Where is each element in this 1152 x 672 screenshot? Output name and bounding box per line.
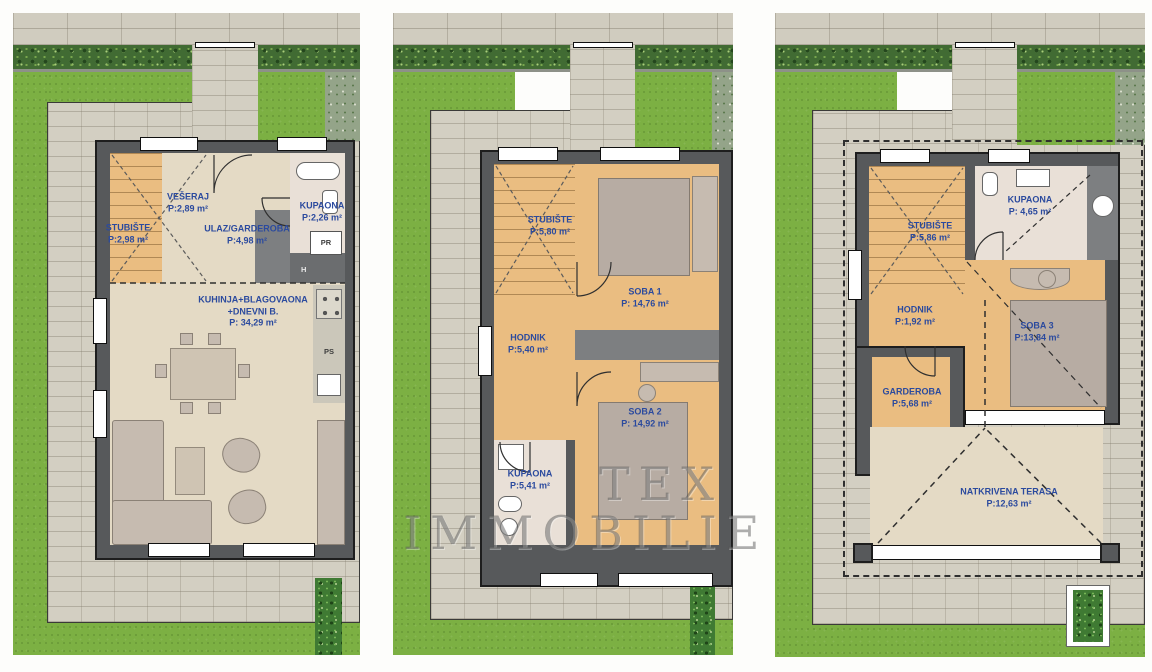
room-name: SOBA 2	[621, 406, 669, 418]
tag-pr: PR	[321, 239, 331, 247]
room-area: P:5,80 m²	[528, 226, 573, 238]
room-hodnik	[494, 295, 575, 440]
room-name: SOBA 3	[1014, 320, 1059, 332]
walkway	[570, 45, 635, 155]
room-label-kupaona-1: KUPAONA P:2,26 m²	[300, 200, 345, 223]
room-name2: +DNEVNI B.	[198, 306, 308, 318]
ivy-bed	[712, 72, 733, 152]
room-name: NATKRIVENA TERASA	[960, 486, 1058, 498]
room-name: STUBIŠTE	[106, 222, 151, 234]
room-label-kupaona-2: KUPAONA P:5,41 m²	[508, 468, 553, 491]
dining-table	[170, 348, 236, 400]
window	[618, 573, 713, 587]
flower-bed	[315, 578, 342, 655]
room-label-stubiste-3: STUBIŠTE P:5,86 m²	[908, 220, 953, 243]
room-label-kuhinja: KUHINJA+BLAGOVAONA +DNEVNI B. P: 34,29 m…	[198, 294, 308, 329]
room-name: HODNIK	[895, 304, 935, 316]
room-area: P:5,41 m²	[508, 480, 553, 492]
room-name: STUBIŠTE	[908, 220, 953, 232]
room-label-hodnik-3: HODNIK P:1,92 m²	[895, 304, 935, 327]
flower-bed	[690, 578, 715, 655]
washer-icon	[500, 518, 518, 536]
window	[478, 326, 492, 376]
room-name: KUPAONA	[1008, 194, 1053, 206]
staircase-ground	[110, 153, 162, 283]
desk-chair	[638, 384, 656, 402]
room-name: KUPAONA	[300, 200, 345, 212]
window	[540, 573, 598, 587]
coffee-table	[175, 447, 205, 495]
window	[600, 147, 680, 161]
bed	[598, 178, 690, 276]
hedge	[635, 45, 733, 72]
grass-front	[812, 72, 897, 110]
room-name: HODNIK	[508, 332, 548, 344]
chair-icon	[180, 333, 193, 345]
hedge	[1017, 45, 1145, 72]
planter-bush	[1073, 590, 1103, 642]
ivy-bed	[325, 72, 360, 141]
chair-icon	[208, 333, 221, 345]
wardrobe	[692, 176, 718, 272]
hedge	[393, 45, 570, 72]
grass-back	[393, 620, 733, 655]
window	[140, 137, 198, 151]
grass-side	[775, 72, 812, 655]
shaft-block	[290, 253, 345, 283]
room-label-garderoba: GARDEROBA P:5,68 m²	[882, 386, 941, 409]
gate-threshold	[195, 42, 255, 48]
room-name: SOBA 1	[621, 286, 669, 298]
sink-icon	[296, 162, 340, 180]
floorplan-sheet: VEŠERAJ P:2,89 m² STUBIŠTE P:2,98 m² ULA…	[0, 0, 1152, 672]
room-label-hodnik-2: HODNIK P:5,40 m²	[508, 332, 548, 355]
walkway	[192, 45, 258, 141]
roof-outline-dashed	[843, 140, 1143, 577]
shower-icon	[498, 444, 524, 470]
walkway	[952, 45, 1017, 140]
room-name: GARDEROBA	[882, 386, 941, 398]
gate-threshold	[573, 42, 633, 48]
window	[243, 543, 315, 557]
room-name: VEŠERAJ	[167, 191, 209, 203]
stove-icon	[316, 289, 342, 319]
hedge	[775, 45, 952, 72]
desk	[640, 362, 719, 382]
hedge	[258, 45, 360, 72]
window	[148, 543, 210, 557]
ivy-bed	[1115, 72, 1145, 145]
room-area: P:5,68 m²	[882, 398, 941, 410]
room-label-stubiste-2: STUBIŠTE P:5,80 m²	[528, 214, 573, 237]
grass-side	[393, 72, 430, 655]
grass-front	[1017, 72, 1115, 145]
grass-front	[258, 72, 325, 141]
closet-band	[575, 330, 719, 360]
room-name: STUBIŠTE	[528, 214, 573, 226]
sink-icon	[498, 496, 522, 512]
chair-icon	[208, 402, 221, 414]
chair-icon	[238, 364, 250, 378]
room-label-stubiste-1: STUBIŠTE P:2,98 m²	[106, 222, 151, 245]
grass-front	[430, 72, 515, 110]
room-label-soba2: SOBA 2 P: 14,92 m²	[621, 406, 669, 429]
chair-icon	[155, 364, 167, 378]
room-name: KUHINJA+BLAGOVAONA	[198, 294, 308, 306]
room-area: P: 14,76 m²	[621, 298, 669, 310]
sidewalk-strip	[775, 13, 1145, 45]
room-area: P: 34,29 m²	[198, 318, 308, 330]
room-area: P: 14,92 m²	[621, 418, 669, 430]
room-name: KUPAONA	[508, 468, 553, 480]
window	[277, 137, 327, 151]
sidewalk-strip	[13, 13, 360, 45]
grass-side	[13, 72, 47, 655]
room-area: P: 4,65 m²	[1008, 206, 1053, 218]
kitchen-sink-icon	[317, 374, 341, 396]
grass-back	[13, 623, 360, 655]
window	[498, 147, 558, 161]
gate-threshold	[955, 42, 1015, 48]
sofa	[112, 500, 212, 545]
room-area: P:2,89 m²	[167, 203, 209, 215]
room-area: P:2,26 m²	[300, 212, 345, 224]
room-name: ULAZ/GARDEROBA	[204, 223, 290, 235]
tag-h: H	[301, 266, 306, 274]
room-area: P:13,84 m²	[1014, 332, 1059, 344]
hedge	[13, 45, 192, 72]
room-label-terasa: NATKRIVENA TERASA P:12,63 m²	[960, 486, 1058, 509]
room-area: P:4,98 m²	[204, 235, 290, 247]
sidewalk-strip	[393, 13, 733, 45]
cabinet-band	[317, 420, 345, 545]
room-label-kupaona-3: KUPAONA P: 4,65 m²	[1008, 194, 1053, 217]
tag-ps: PS	[324, 348, 334, 356]
room-label-soba3: SOBA 3 P:13,84 m²	[1014, 320, 1059, 343]
room-area: P:5,86 m²	[908, 232, 953, 244]
grass-front	[635, 72, 712, 152]
chair-icon	[180, 402, 193, 414]
room-area: P:2,98 m²	[106, 234, 151, 246]
room-label-ulaz: ULAZ/GARDEROBA P:4,98 m²	[204, 223, 290, 246]
window	[93, 298, 107, 344]
room-area: P:12,63 m²	[960, 498, 1058, 510]
room-area: P:1,92 m²	[895, 316, 935, 328]
room-area: P:5,40 m²	[508, 344, 548, 356]
room-label-soba1: SOBA 1 P: 14,76 m²	[621, 286, 669, 309]
window	[93, 390, 107, 438]
room-label-veseraj: VEŠERAJ P:2,89 m²	[167, 191, 209, 214]
room-veseraj	[162, 153, 208, 283]
grass-front	[47, 72, 192, 102]
pr-box: PR	[310, 231, 342, 255]
